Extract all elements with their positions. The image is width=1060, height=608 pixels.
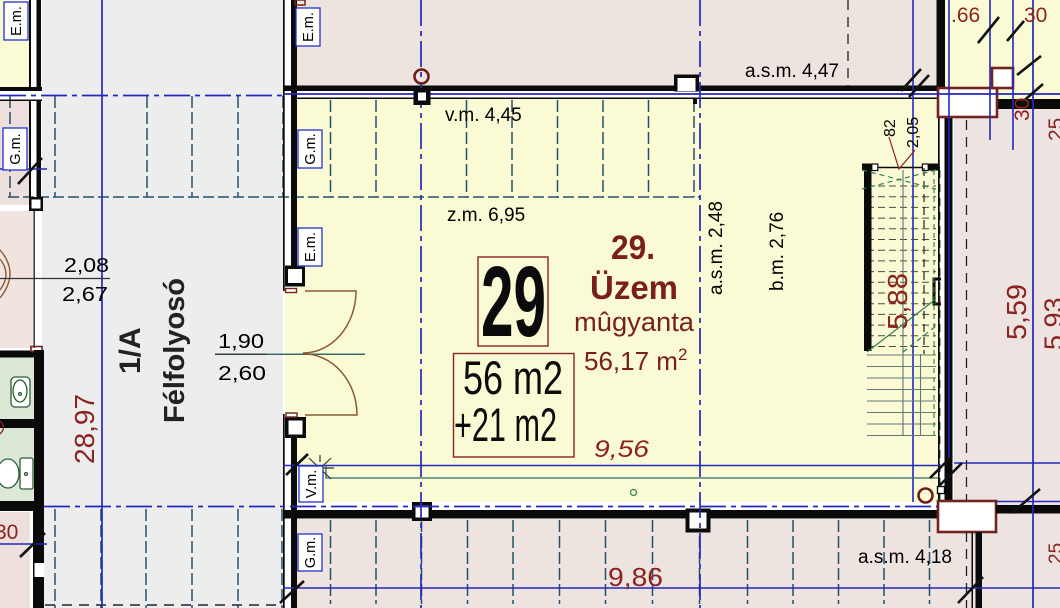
svg-text:1,90: 1,90 [218,331,264,353]
svg-text:a.s.m. 4,47: a.s.m. 4,47 [745,61,839,82]
svg-text:Félfolyosó: Félfolyosó [159,278,191,423]
svg-text:30: 30 [0,521,18,544]
svg-text:v.m. 4,45: v.m. 4,45 [445,105,522,126]
svg-text:a.s.m. 2,48: a.s.m. 2,48 [706,201,727,295]
svg-text:56 m2: 56 m2 [463,351,563,404]
svg-text:9,86: 9,86 [608,562,663,592]
svg-text:9,56: 9,56 [594,436,650,463]
svg-text:82: 82 [882,119,899,137]
svg-text:29.: 29. [611,229,655,267]
svg-text:30: 30 [1011,98,1034,121]
svg-text:E.m.: E.m. [9,6,25,36]
svg-text:+21 m2: +21 m2 [454,398,557,451]
svg-text:z.m. 6,95: z.m. 6,95 [447,205,525,226]
svg-text:a.s.m. 4,18: a.s.m. 4,18 [858,547,952,568]
svg-text:b.m. 2,76: b.m. 2,76 [767,212,788,291]
svg-text:2,08: 2,08 [64,255,109,277]
svg-text:E.m.: E.m. [301,12,317,42]
svg-text:.66: .66 [951,4,980,27]
svg-text:V.m.: V.m. [304,470,320,498]
svg-text:56,17 m2: 56,17 m2 [584,345,687,376]
svg-text:E.m.: E.m. [303,232,319,262]
svg-text:2,67: 2,67 [62,284,108,306]
svg-text:25: 25 [1046,543,1060,564]
svg-text:Üzem: Üzem [590,269,678,306]
svg-text:30: 30 [1024,4,1047,27]
svg-text:5,93: 5,93 [1039,297,1060,350]
svg-text:5,88: 5,88 [882,273,913,330]
svg-text:G.m.: G.m. [303,537,319,568]
svg-text:5,59: 5,59 [1001,284,1032,340]
svg-text:25: 25 [1045,118,1060,141]
svg-text:G.m.: G.m. [8,133,24,164]
svg-text:1/A: 1/A [114,327,147,374]
svg-text:G.m.: G.m. [303,133,319,164]
svg-text:28,97: 28,97 [69,394,100,464]
svg-text:2,05: 2,05 [905,117,922,148]
svg-text:29: 29 [481,246,546,358]
svg-text:mûgyanta: mûgyanta [574,307,695,337]
svg-text:2,60: 2,60 [218,363,266,385]
